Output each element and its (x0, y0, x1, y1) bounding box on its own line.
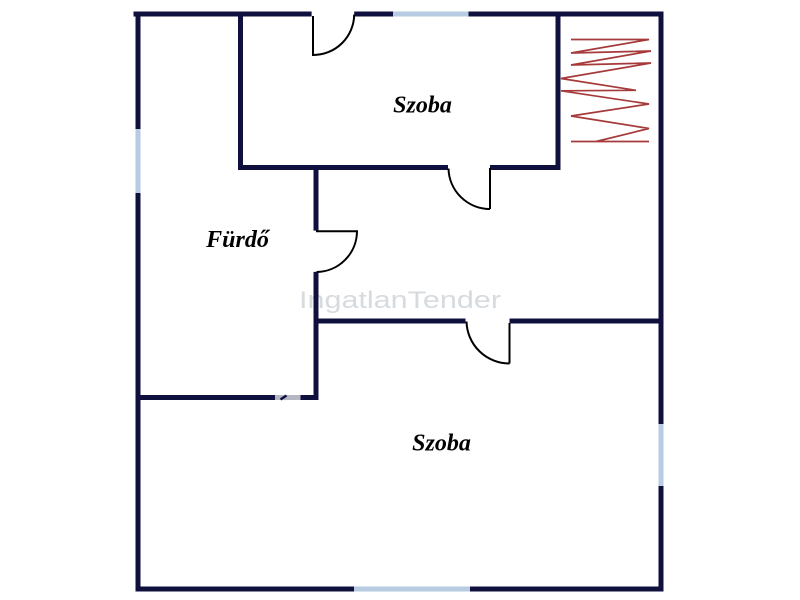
svg-text:Fürdő: Fürdő (205, 227, 271, 253)
svg-text:Szoba: Szoba (412, 431, 471, 457)
svg-text:IngatlanTender: IngatlanTender (299, 287, 501, 314)
svg-text:Szoba: Szoba (393, 93, 452, 119)
